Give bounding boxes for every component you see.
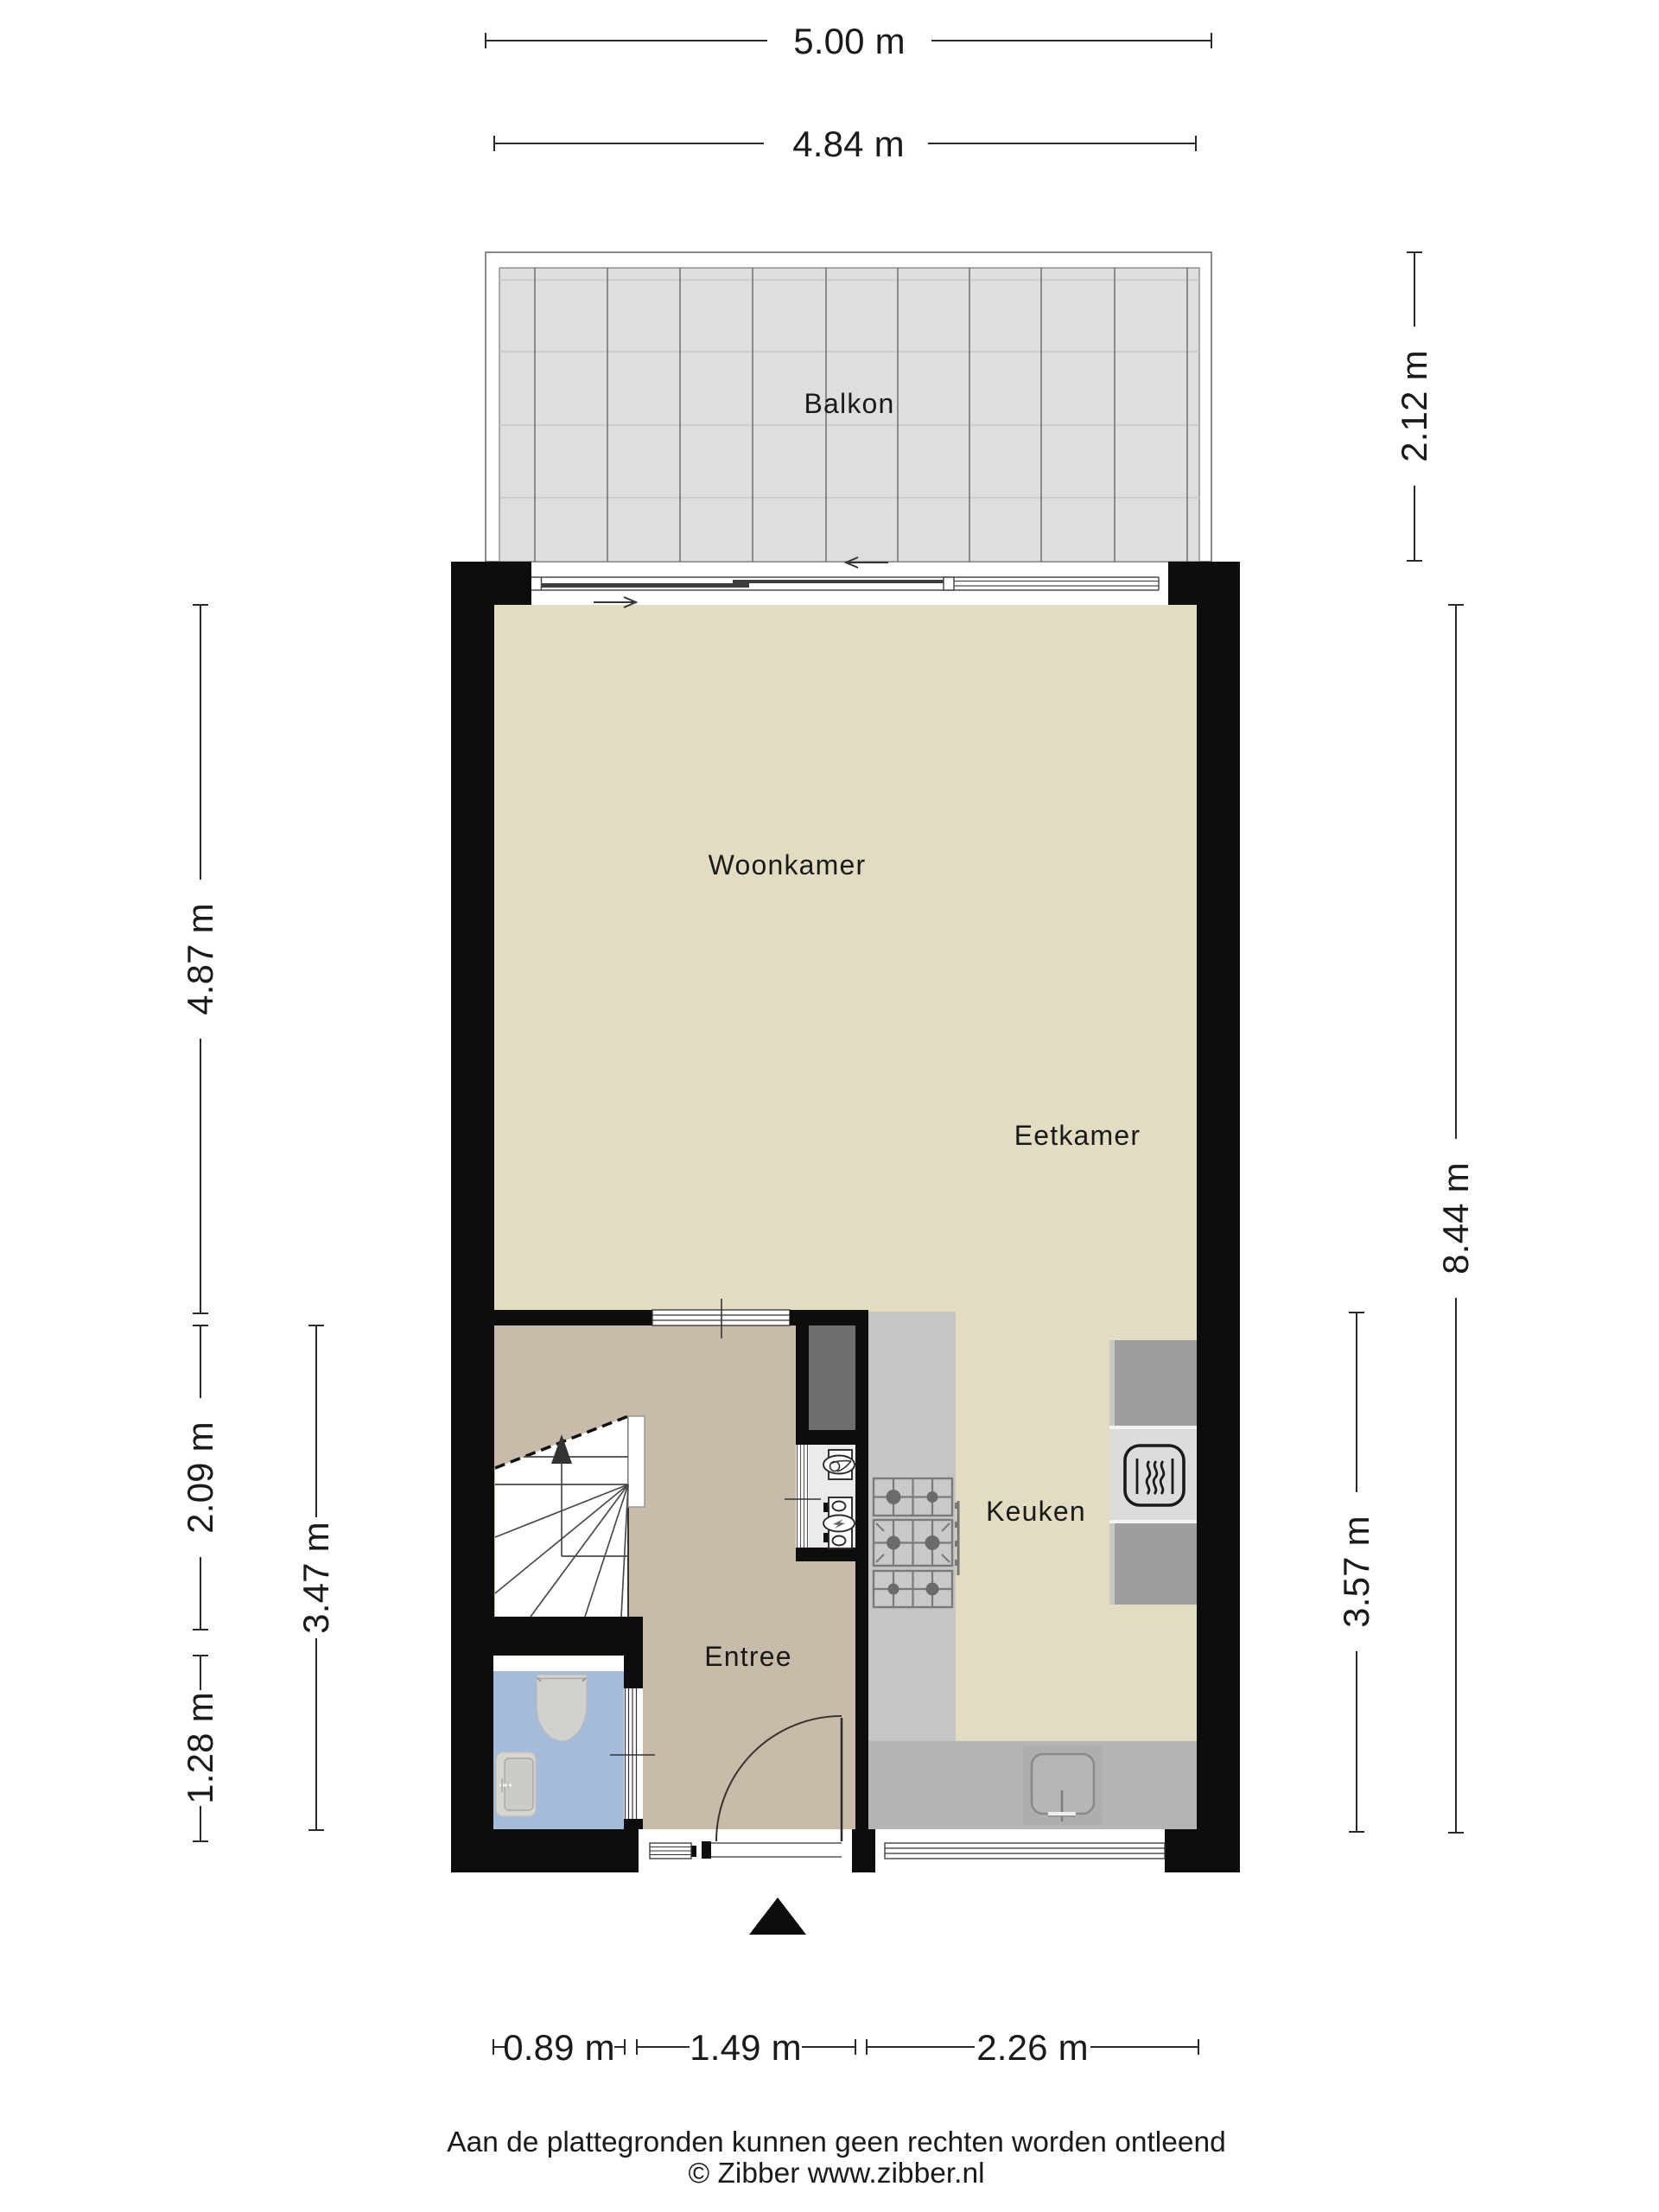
- svg-text:3.47 m: 3.47 m: [296, 1522, 336, 1634]
- svg-text:2.09 m: 2.09 m: [180, 1421, 220, 1534]
- svg-text:Keuken: Keuken: [986, 1496, 1086, 1527]
- svg-text:1.28 m: 1.28 m: [180, 1692, 220, 1804]
- svg-text:4.87 m: 4.87 m: [180, 903, 220, 1015]
- svg-text:2.26 m: 2.26 m: [976, 2027, 1089, 2068]
- svg-text:Eetkamer: Eetkamer: [1014, 1120, 1141, 1151]
- svg-text:Woonkamer: Woonkamer: [709, 849, 867, 880]
- svg-text:Balkon: Balkon: [804, 388, 894, 419]
- svg-text:1.49 m: 1.49 m: [690, 2027, 802, 2068]
- svg-text:© Zibber www.zibber.nl: © Zibber www.zibber.nl: [688, 2158, 984, 2190]
- svg-text:8.44 m: 8.44 m: [1435, 1162, 1476, 1274]
- svg-text:0.89 m: 0.89 m: [503, 2027, 615, 2068]
- svg-text:Entree: Entree: [704, 1641, 791, 1672]
- svg-text:2.12 m: 2.12 m: [1394, 350, 1434, 462]
- svg-text:4.84 m: 4.84 m: [792, 124, 905, 164]
- svg-text:Aan de plattegronden kunnen ge: Aan de plattegronden kunnen geen rechten…: [447, 2126, 1226, 2158]
- svg-text:3.57 m: 3.57 m: [1336, 1516, 1376, 1628]
- svg-text:5.00 m: 5.00 m: [793, 21, 906, 61]
